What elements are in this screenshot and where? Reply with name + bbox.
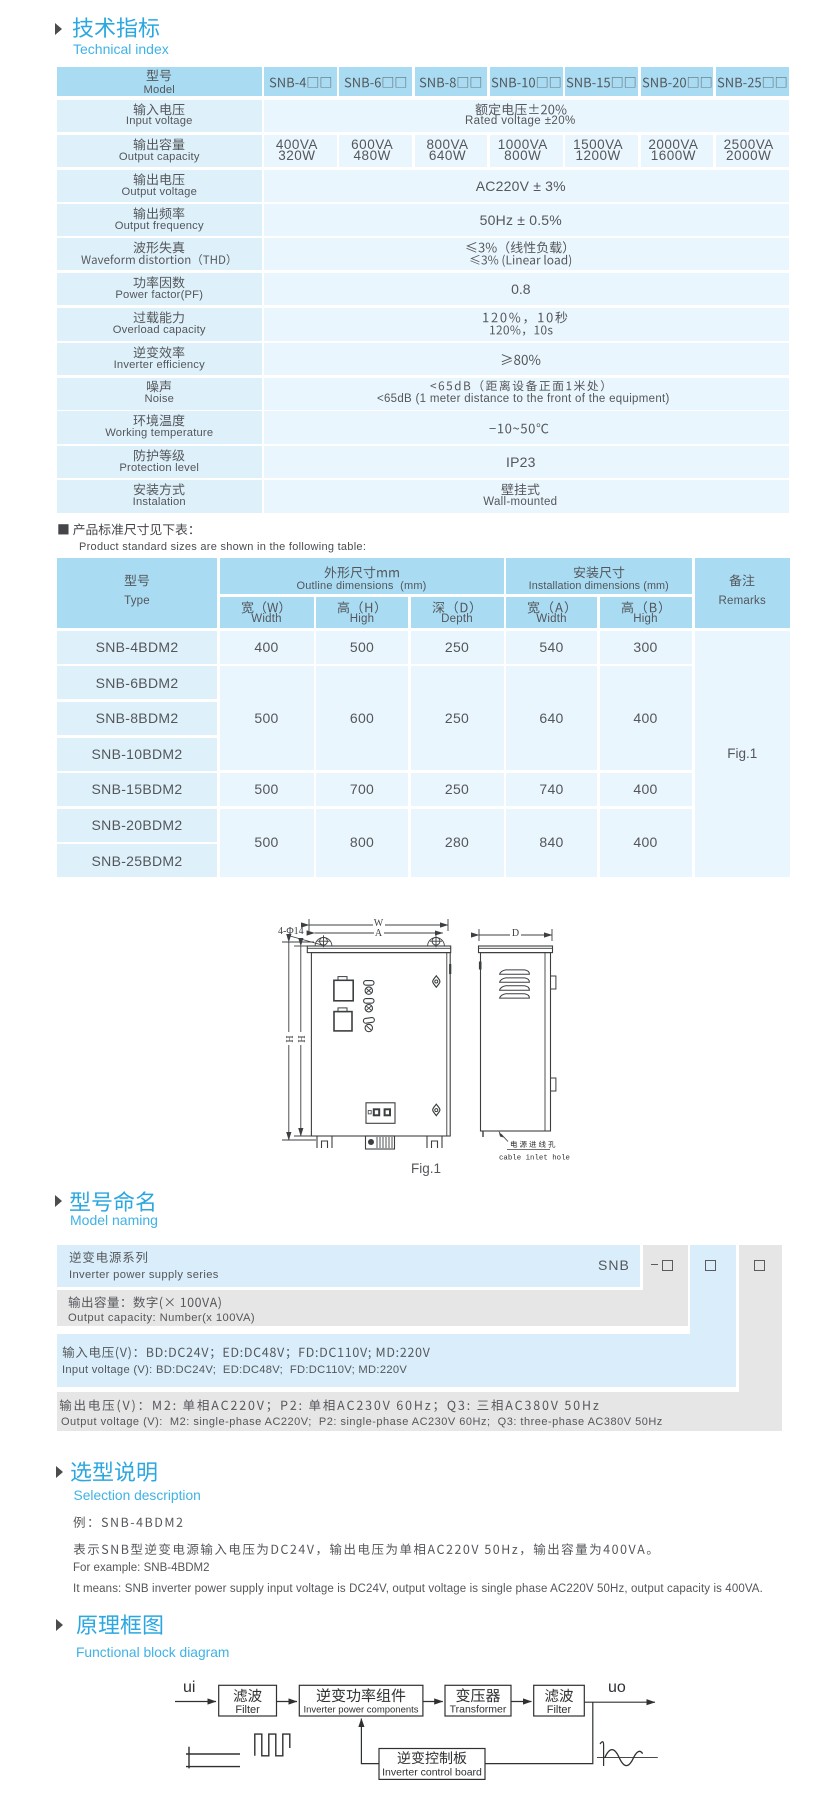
svg-text:Inverter power components: Inverter power components [303,1705,418,1716]
svg-text:cable inlet hole: cable inlet hole [499,1155,570,1163]
svg-text:Filter: Filter [547,1704,572,1716]
svg-text:Inverter control board: Inverter control board [382,1767,482,1779]
svg-text:A: A [375,928,383,939]
svg-text:Filter: Filter [235,1704,260,1716]
svg-text:uo: uo [608,1679,626,1696]
svg-text:H: H [285,1035,296,1042]
svg-text:H: H [297,1035,308,1042]
svg-text:D: D [512,928,519,939]
svg-text:ui: ui [183,1679,195,1696]
svg-text:4-Φ14: 4-Φ14 [278,926,304,937]
svg-text:Transformer: Transformer [450,1704,507,1716]
